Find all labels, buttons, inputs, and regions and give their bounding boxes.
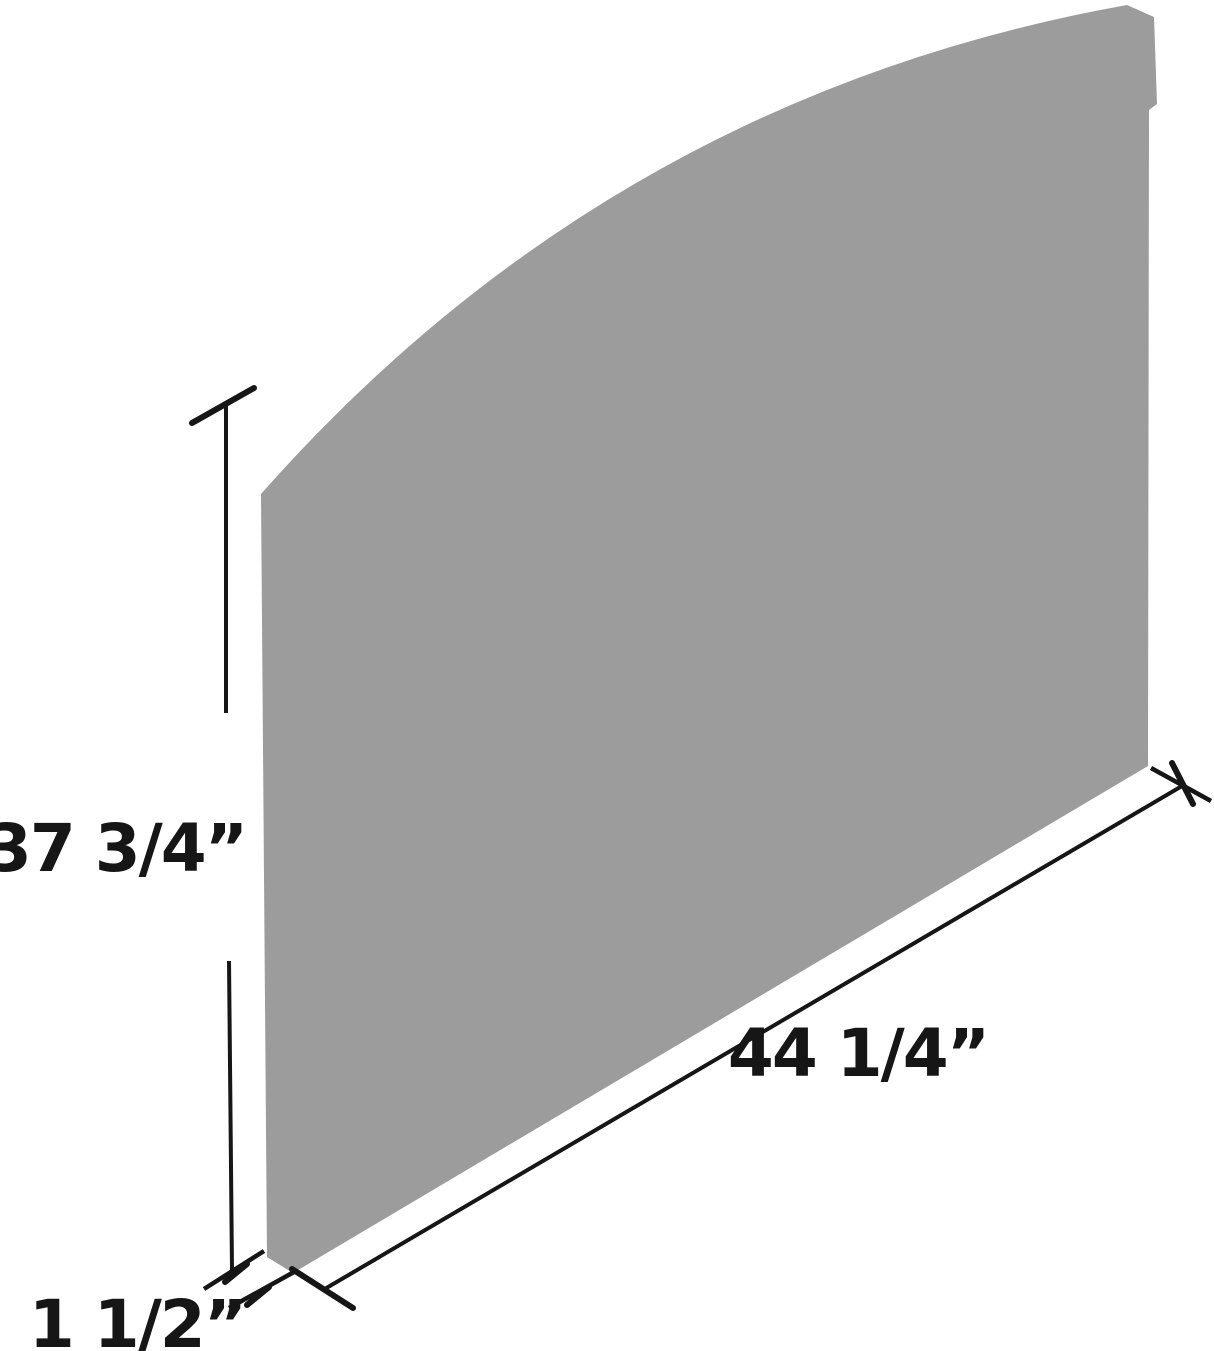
length-dimension-label: 44 1/4” bbox=[728, 1015, 988, 1092]
dimension-diagram: 37 3/4” 44 1/4” 1 1/2” bbox=[0, 0, 1214, 1351]
height-dimension-label: 37 3/4” bbox=[0, 810, 246, 887]
height-dimension-line-lower bbox=[229, 961, 232, 1270]
thickness-extension-line-outer bbox=[204, 1251, 264, 1289]
length-left-end-tick bbox=[292, 1269, 353, 1308]
thickness-dimension-label: 1 1/2” bbox=[29, 1286, 245, 1351]
panel-silhouette bbox=[261, 5, 1157, 1273]
height-dimension-top-tick bbox=[192, 388, 254, 423]
diagram-canvas: 37 3/4” 44 1/4” 1 1/2” bbox=[0, 0, 1214, 1351]
